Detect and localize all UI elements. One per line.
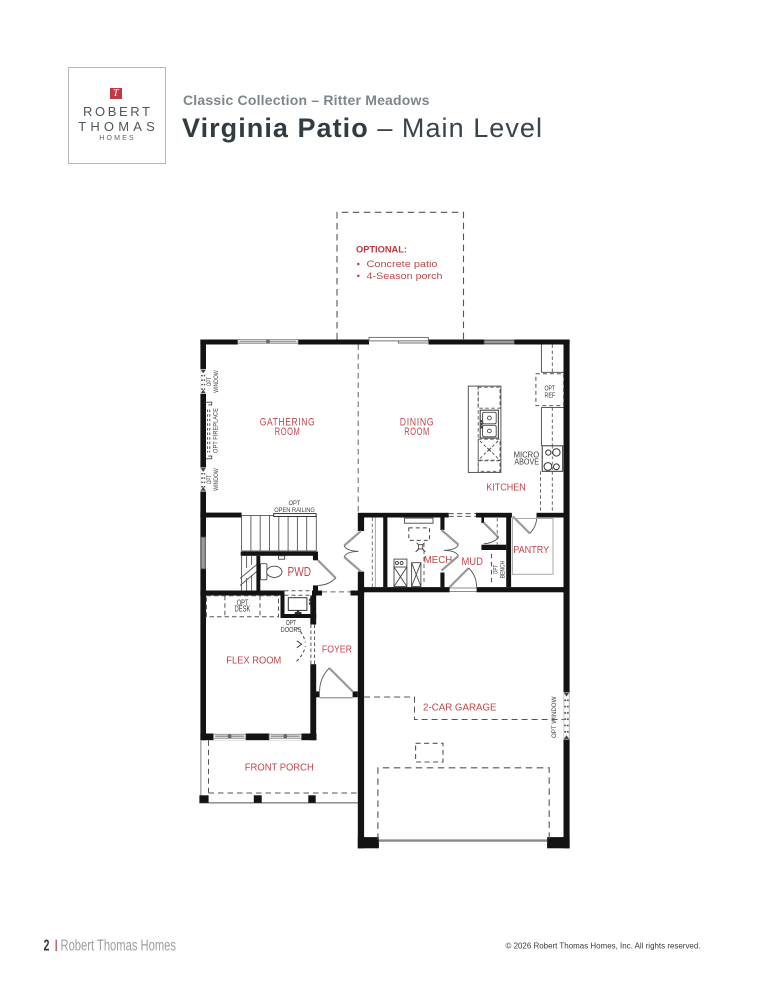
svg-text:WINDOW: WINDOW <box>213 468 220 491</box>
svg-text:ROOM: ROOM <box>404 426 430 438</box>
svg-text:PWD: PWD <box>288 565 312 579</box>
svg-text:DESK: DESK <box>235 605 251 614</box>
svg-text:ROOM: ROOM <box>275 426 301 438</box>
svg-text:Robert Thomas Homes: Robert Thomas Homes <box>61 937 177 954</box>
svg-text:OPT: OPT <box>206 475 213 484</box>
svg-text:FLEX ROOM: FLEX ROOM <box>226 654 281 666</box>
svg-text:2-CAR GARAGE: 2-CAR GARAGE <box>423 702 497 714</box>
svg-text:REF: REF <box>545 392 556 399</box>
svg-text:WINDOW: WINDOW <box>213 370 220 393</box>
svg-text:MUD: MUD <box>461 556 483 568</box>
svg-text:OPT WINDOW: OPT WINDOW <box>551 696 558 738</box>
svg-text:FOYER: FOYER <box>322 644 352 656</box>
svg-text:OPEN RAILING: OPEN RAILING <box>274 507 315 514</box>
svg-text:OPT FIREPLACE: OPT FIREPLACE <box>213 408 220 453</box>
svg-text:Concrete patio: Concrete patio <box>367 259 438 270</box>
svg-text:DOORS: DOORS <box>281 625 302 634</box>
svg-text:© 2026 Robert Thomas Homes, In: © 2026 Robert Thomas Homes, Inc. All rig… <box>506 942 701 951</box>
svg-text:OPTIONAL:: OPTIONAL: <box>356 245 407 256</box>
svg-text:OPT: OPT <box>206 377 213 386</box>
svg-text:4-Season porch: 4-Season porch <box>367 271 443 282</box>
svg-text:PANTRY: PANTRY <box>513 544 549 556</box>
svg-text:FRONT PORCH: FRONT PORCH <box>245 762 314 774</box>
svg-text:2: 2 <box>44 937 50 954</box>
svg-text:OPT: OPT <box>289 500 301 507</box>
svg-text:OPT: OPT <box>545 385 556 392</box>
svg-text:BENCH: BENCH <box>500 560 507 578</box>
svg-text:KITCHEN: KITCHEN <box>486 482 526 494</box>
svg-text:ABOVE: ABOVE <box>514 458 539 467</box>
svg-text:OPT: OPT <box>493 565 500 574</box>
